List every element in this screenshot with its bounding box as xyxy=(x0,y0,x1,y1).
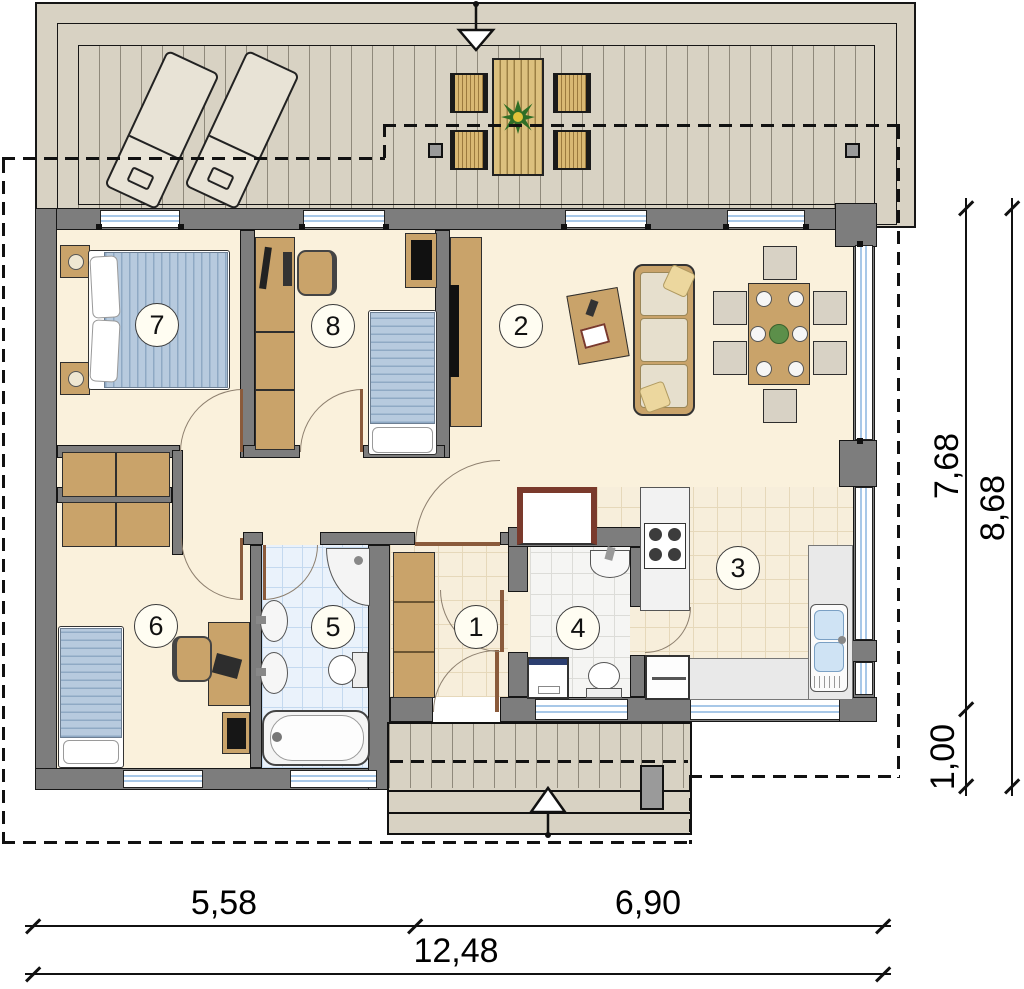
terrace-post xyxy=(428,143,443,158)
room-number-badge-1: 1 xyxy=(454,605,498,649)
window-jamb-mark xyxy=(299,224,305,230)
plate-icon xyxy=(792,326,808,342)
tv-icon xyxy=(450,285,459,377)
overhang-dash-right xyxy=(897,126,900,778)
office-chair xyxy=(172,636,212,682)
toilet xyxy=(588,662,620,690)
dim-label-depth-main: 7,68 xyxy=(930,421,964,511)
overhang-dash-mid xyxy=(689,775,900,778)
window-jamb-mark xyxy=(857,241,863,247)
lounge-chair-foot xyxy=(206,166,235,191)
toilet-tank xyxy=(586,688,622,698)
overhang-dash-bottom xyxy=(2,841,692,844)
window-living-right xyxy=(855,245,873,440)
burner-icon xyxy=(668,548,681,561)
sofa-cushion xyxy=(640,318,688,362)
overhang-dash-top-left xyxy=(2,157,385,160)
overhang-dash-top-step xyxy=(383,124,386,160)
window-bathroom xyxy=(290,770,377,788)
office-chair xyxy=(297,250,337,296)
window-kitchen-right-2 xyxy=(855,662,873,695)
lamp-icon xyxy=(68,254,84,270)
sink-basin xyxy=(814,642,844,672)
window-jamb-mark xyxy=(803,224,809,230)
plate-icon xyxy=(756,361,772,377)
room-number-badge-5: 5 xyxy=(311,605,355,649)
dim-line-width-inner xyxy=(25,925,891,927)
window-kitchen-right-1 xyxy=(855,487,873,640)
dining-chair xyxy=(813,341,847,375)
window-jamb-mark xyxy=(178,224,184,230)
wardrobe-unit xyxy=(62,502,116,547)
dishwasher-handle xyxy=(652,677,686,680)
overhang-dash-step xyxy=(689,777,692,844)
room-number-badge-7: 7 xyxy=(135,303,179,347)
lamp-icon xyxy=(68,371,84,387)
plant-flower-dot xyxy=(513,112,523,122)
faucet-icon xyxy=(256,668,266,676)
dining-chair xyxy=(763,389,797,423)
room-number-7: 7 xyxy=(149,310,164,341)
terrace-chair xyxy=(450,73,488,113)
dim-line-width-outer xyxy=(25,973,891,975)
pillow xyxy=(89,255,120,318)
window-room8 xyxy=(303,210,385,228)
room-number-6: 6 xyxy=(148,611,163,642)
wardrobe-unit xyxy=(62,452,116,497)
toilet xyxy=(328,655,356,685)
wall-left xyxy=(35,208,57,790)
dining-chair xyxy=(763,246,797,280)
porch-dashed-line xyxy=(390,760,688,763)
room-number-badge-3: 3 xyxy=(716,546,760,590)
wardrobe-divider-line xyxy=(394,651,434,653)
entry-arrow-top-icon xyxy=(455,0,497,52)
door-leaf-hall xyxy=(415,542,500,546)
dining-chair xyxy=(813,291,847,325)
window-jamb-mark xyxy=(723,224,729,230)
burner-icon xyxy=(668,528,681,541)
wall-corridor-south-a xyxy=(243,532,263,545)
wardrobe-unit xyxy=(116,452,170,497)
pc-tower-icon xyxy=(283,252,292,286)
wall-hall-wc-a xyxy=(508,545,528,592)
door-leaf-entrance xyxy=(495,650,499,712)
pillow xyxy=(63,740,119,764)
dim-label-width-total: 12,48 xyxy=(396,934,516,968)
bookshelf xyxy=(405,233,437,288)
room-number-8: 8 xyxy=(325,311,340,342)
washing-machine xyxy=(527,657,569,699)
bathtub-basin xyxy=(270,715,364,761)
faucet-icon xyxy=(272,732,282,742)
window-jamb-mark xyxy=(857,438,863,444)
hall-wardrobe xyxy=(393,552,435,698)
dim-label-width-right: 6,90 xyxy=(588,886,708,920)
window-jamb-mark xyxy=(96,224,102,230)
window-room7 xyxy=(100,210,180,228)
window-jamb-mark xyxy=(645,224,651,230)
plate-icon xyxy=(756,291,772,307)
dishwasher xyxy=(645,655,690,700)
sink-drainer xyxy=(814,676,844,688)
books-icon xyxy=(411,240,432,280)
window-jamb-mark xyxy=(383,224,389,230)
terrace-chair xyxy=(450,130,488,170)
wardrobe-divider-line xyxy=(394,601,434,603)
door-leaf-room7 xyxy=(240,389,243,452)
room-number-badge-4: 4 xyxy=(556,606,600,650)
nightstand xyxy=(60,245,90,278)
books-icon xyxy=(227,718,246,749)
dim-label-width-left: 5,58 xyxy=(164,886,284,920)
room-number-badge-6: 6 xyxy=(134,604,178,648)
window-wc xyxy=(535,699,628,720)
dim-label-depth-total: 8,68 xyxy=(976,463,1010,553)
floor-plan-canvas: 1 2 3 4 5 6 7 8 7,68 8,68 1,00 5,58 6,90… xyxy=(0,0,1024,989)
washing-machine-top xyxy=(529,659,567,665)
door-leaf-wc xyxy=(500,590,504,652)
burner-icon xyxy=(649,528,662,541)
window-room6 xyxy=(123,770,203,788)
room-number-4: 4 xyxy=(570,613,585,644)
wall-bottom-main-left xyxy=(390,697,433,722)
faucet-icon xyxy=(838,636,846,644)
room-number-badge-8: 8 xyxy=(311,304,355,348)
door-leaf-room8 xyxy=(360,389,363,452)
washing-machine-drawer xyxy=(538,686,560,694)
window-living-2 xyxy=(727,210,805,228)
lounge-chair-backrest-line xyxy=(209,134,259,159)
single-bed-duvet xyxy=(60,628,122,738)
wall-room8-living xyxy=(435,230,450,458)
door-leaf-bathroom xyxy=(263,545,266,600)
window-jamb-mark xyxy=(561,224,567,230)
lounge-chair-foot xyxy=(126,166,155,191)
overhang-dash-top-right xyxy=(383,124,900,127)
terrace-post xyxy=(845,143,860,158)
cabinet xyxy=(255,332,295,390)
wardrobe-unit xyxy=(116,502,170,547)
pillow xyxy=(89,319,120,382)
pier-right-mid xyxy=(839,440,877,487)
porch-column xyxy=(640,765,664,810)
wall-hall-wc-b xyxy=(508,652,528,697)
faucet-icon xyxy=(354,556,363,565)
room-number-3: 3 xyxy=(730,553,745,584)
terrace-chair xyxy=(553,73,591,113)
plate-icon xyxy=(788,291,804,307)
pier-top-right xyxy=(835,203,877,247)
pillow xyxy=(372,427,433,453)
dining-chair xyxy=(713,341,747,375)
window-kitchen-bottom xyxy=(690,699,840,720)
room-number-2: 2 xyxy=(513,311,528,342)
bookshelf xyxy=(222,712,250,754)
overhang-dash-left xyxy=(2,160,5,843)
wall-wc-kitchen-b xyxy=(630,655,645,697)
room-number-5: 5 xyxy=(325,612,340,643)
room-number-1: 1 xyxy=(468,612,483,643)
nightstand xyxy=(60,362,90,395)
window-living-1 xyxy=(565,210,647,228)
wall-room6-bath xyxy=(250,545,262,768)
pier-right-corner xyxy=(839,697,877,722)
plate-icon xyxy=(750,326,766,342)
wall-corridor-south-b xyxy=(320,532,415,545)
burner-icon xyxy=(649,548,662,561)
terrace-chair xyxy=(553,130,591,170)
lounge-chair-backrest-line xyxy=(129,134,179,159)
cabinet xyxy=(255,390,295,450)
plate-icon xyxy=(788,361,804,377)
centerpiece-icon xyxy=(769,324,789,344)
dining-chair xyxy=(713,291,747,325)
faucet-icon xyxy=(256,616,266,624)
fridge xyxy=(517,487,597,545)
entry-arrow-bottom-icon xyxy=(528,786,568,840)
room-number-badge-2: 2 xyxy=(499,304,543,348)
dim-label-depth-extension: 1,00 xyxy=(926,712,960,802)
door-leaf-room6 xyxy=(240,538,243,600)
single-bed-duvet xyxy=(370,312,435,424)
